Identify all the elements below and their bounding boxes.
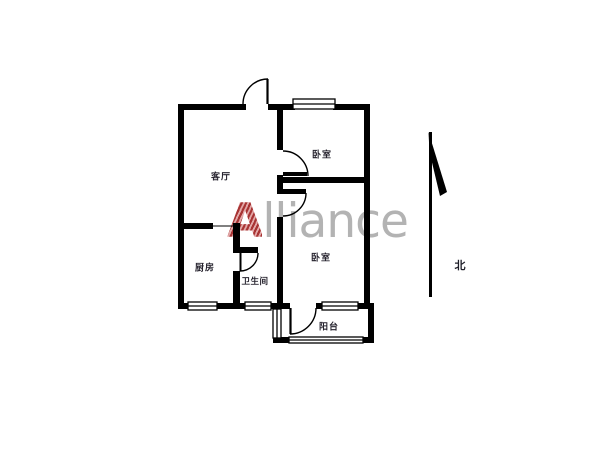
room-label-living: 客厅 (211, 170, 231, 183)
compass-north-label: 北 (455, 257, 466, 273)
entrance-door (243, 79, 268, 104)
room-label-bedroom2: 卧室 (311, 251, 331, 264)
entrance-door-arc (243, 79, 268, 104)
north-arrow-icon (429, 132, 448, 297)
room-label-bathroom: 卫生间 (241, 275, 268, 287)
wall-kitchen-bathroom (233, 271, 240, 309)
balcony-door (290, 308, 316, 334)
wall-bathroom-l-horizontal (233, 247, 258, 253)
outer-walls (178, 104, 370, 309)
window-bathroom (245, 302, 271, 310)
bathroom-door (240, 253, 258, 271)
wall-top-left (178, 104, 246, 110)
wall-top-mid (268, 104, 295, 110)
window-balcony-bottom (289, 337, 363, 343)
wall-bedroom-divider (277, 177, 370, 183)
window-balcony-left (273, 309, 281, 338)
doors (207, 79, 316, 334)
bedroom1-door-leaf (283, 172, 307, 176)
room-label-balcony: 阳台 (319, 320, 339, 333)
wall-bathroom-l-vertical (233, 223, 240, 249)
window-bedroom1-top (293, 99, 335, 109)
room-label-bedroom1: 卧室 (312, 148, 332, 161)
wall-central-upper (277, 110, 283, 150)
room-label-kitchen: 厨房 (195, 261, 215, 274)
wall-central-lower (277, 217, 283, 309)
window-kitchen (188, 302, 217, 310)
wall-bottom-2 (215, 303, 247, 309)
balcony-door-arc (290, 308, 316, 334)
floorplan-image: Alliance (0, 0, 600, 450)
floorplan-drawing (0, 0, 600, 450)
bedroom2-door-leaf (283, 189, 306, 194)
bathroom-door-arc (240, 253, 258, 271)
bedroom2-door-arc (283, 193, 306, 216)
window-bedroom2-balcony (322, 302, 358, 310)
wall-left (178, 104, 184, 309)
wall-right (364, 104, 370, 309)
